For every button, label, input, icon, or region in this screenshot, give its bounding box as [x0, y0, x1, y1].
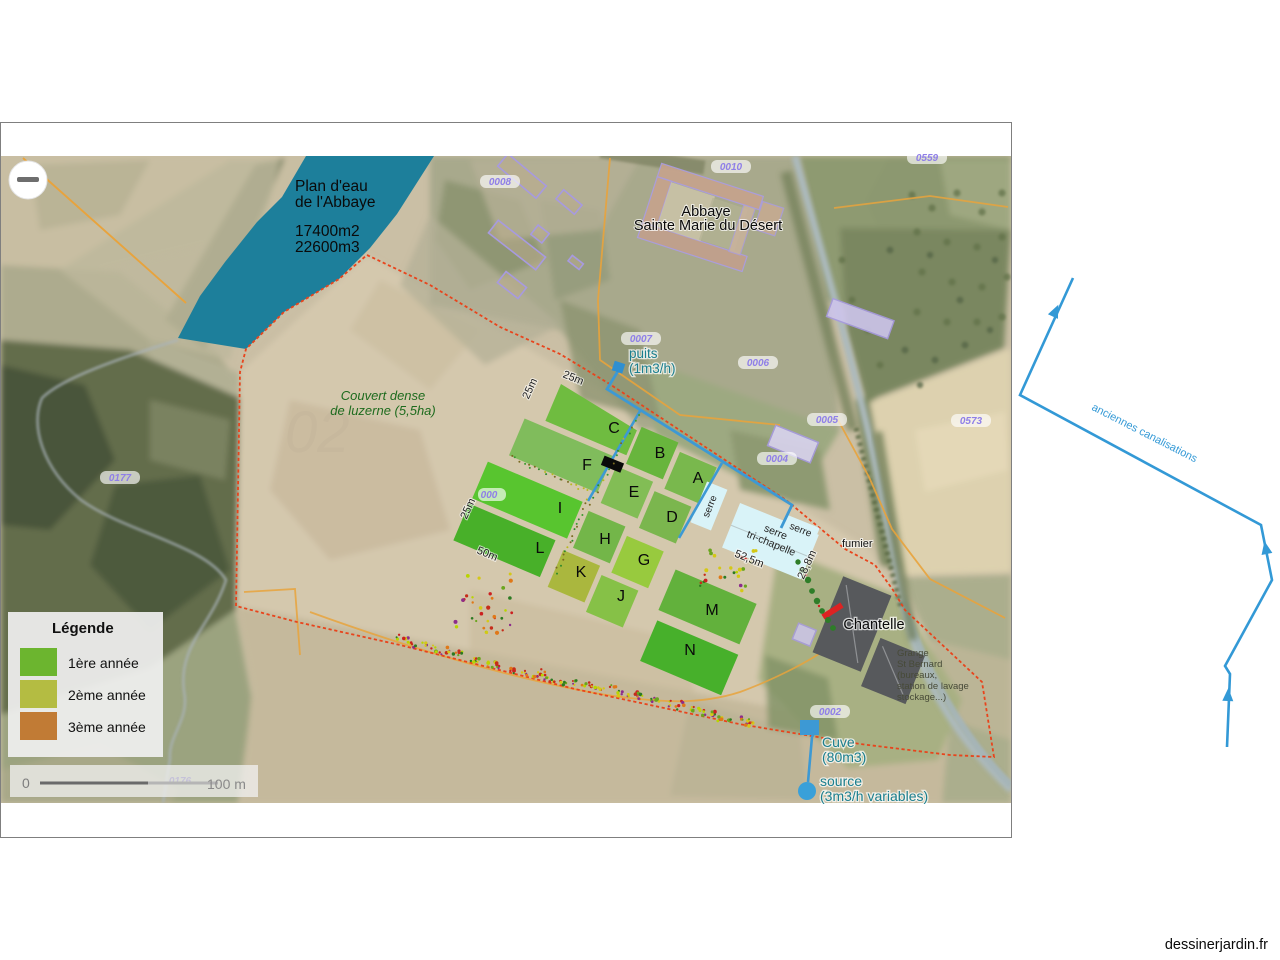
svg-text:A: A	[693, 470, 704, 487]
svg-text:K: K	[576, 564, 587, 581]
svg-text:fumier: fumier	[842, 538, 873, 550]
svg-text:F: F	[582, 457, 592, 474]
svg-text:puits: puits	[629, 346, 658, 361]
svg-text:stockage...): stockage...)	[897, 692, 946, 703]
svg-text:22600m3: 22600m3	[295, 239, 360, 256]
svg-text:(1m3/h): (1m3/h)	[629, 361, 676, 376]
svg-text:H: H	[599, 531, 611, 548]
svg-text:dessinerjardin.fr: dessinerjardin.fr	[1165, 937, 1268, 953]
svg-text:0004: 0004	[766, 454, 789, 465]
svg-text:0177: 0177	[109, 473, 132, 484]
svg-text:0005: 0005	[816, 415, 839, 426]
svg-text:de luzerne (5,5ha): de luzerne (5,5ha)	[330, 403, 436, 418]
svg-text:Sainte Marie du Désert: Sainte Marie du Désert	[634, 218, 782, 234]
svg-text:0559: 0559	[916, 153, 939, 164]
svg-text:3ème année: 3ème année	[68, 719, 146, 735]
svg-text:100 m: 100 m	[207, 776, 246, 792]
svg-text:St Bernard: St Bernard	[897, 659, 942, 670]
svg-text:0006: 0006	[747, 358, 770, 369]
svg-text:2ème année: 2ème année	[68, 687, 146, 703]
svg-text:J: J	[617, 588, 625, 605]
svg-text:I: I	[558, 500, 562, 517]
svg-text:000: 000	[481, 490, 498, 501]
svg-text:source: source	[820, 773, 862, 789]
svg-text:de l'Abbaye: de l'Abbaye	[295, 194, 376, 211]
svg-text:B: B	[655, 445, 666, 462]
svg-text:L: L	[536, 540, 545, 557]
svg-text:Plan d'eau: Plan d'eau	[295, 178, 368, 195]
svg-text:0002: 0002	[819, 707, 842, 718]
svg-text:M: M	[705, 602, 718, 619]
svg-text:station de lavage: station de lavage	[897, 681, 969, 692]
svg-text:D: D	[666, 509, 678, 526]
svg-text:0573: 0573	[960, 416, 983, 427]
svg-text:Cuve: Cuve	[822, 734, 855, 750]
svg-text:C: C	[608, 420, 620, 437]
svg-text:N: N	[684, 642, 696, 659]
svg-text:G: G	[638, 552, 650, 569]
svg-text:0: 0	[22, 775, 30, 791]
svg-text:0007: 0007	[630, 334, 653, 345]
svg-text:E: E	[629, 484, 640, 501]
svg-text:0008: 0008	[489, 177, 512, 188]
svg-text:(80m3): (80m3)	[822, 749, 866, 765]
svg-text:Chantelle: Chantelle	[843, 617, 904, 633]
svg-text:Grange: Grange	[897, 648, 929, 659]
svg-text:(3m3/h variables): (3m3/h variables)	[820, 788, 928, 804]
svg-text:0010: 0010	[720, 162, 743, 173]
svg-text:Légende: Légende	[52, 620, 114, 637]
svg-text:(bureaux,: (bureaux,	[897, 670, 937, 681]
svg-text:17400m2: 17400m2	[295, 223, 360, 240]
svg-text:1ère année: 1ère année	[68, 655, 139, 671]
svg-text:Couvert dense: Couvert dense	[341, 388, 426, 403]
